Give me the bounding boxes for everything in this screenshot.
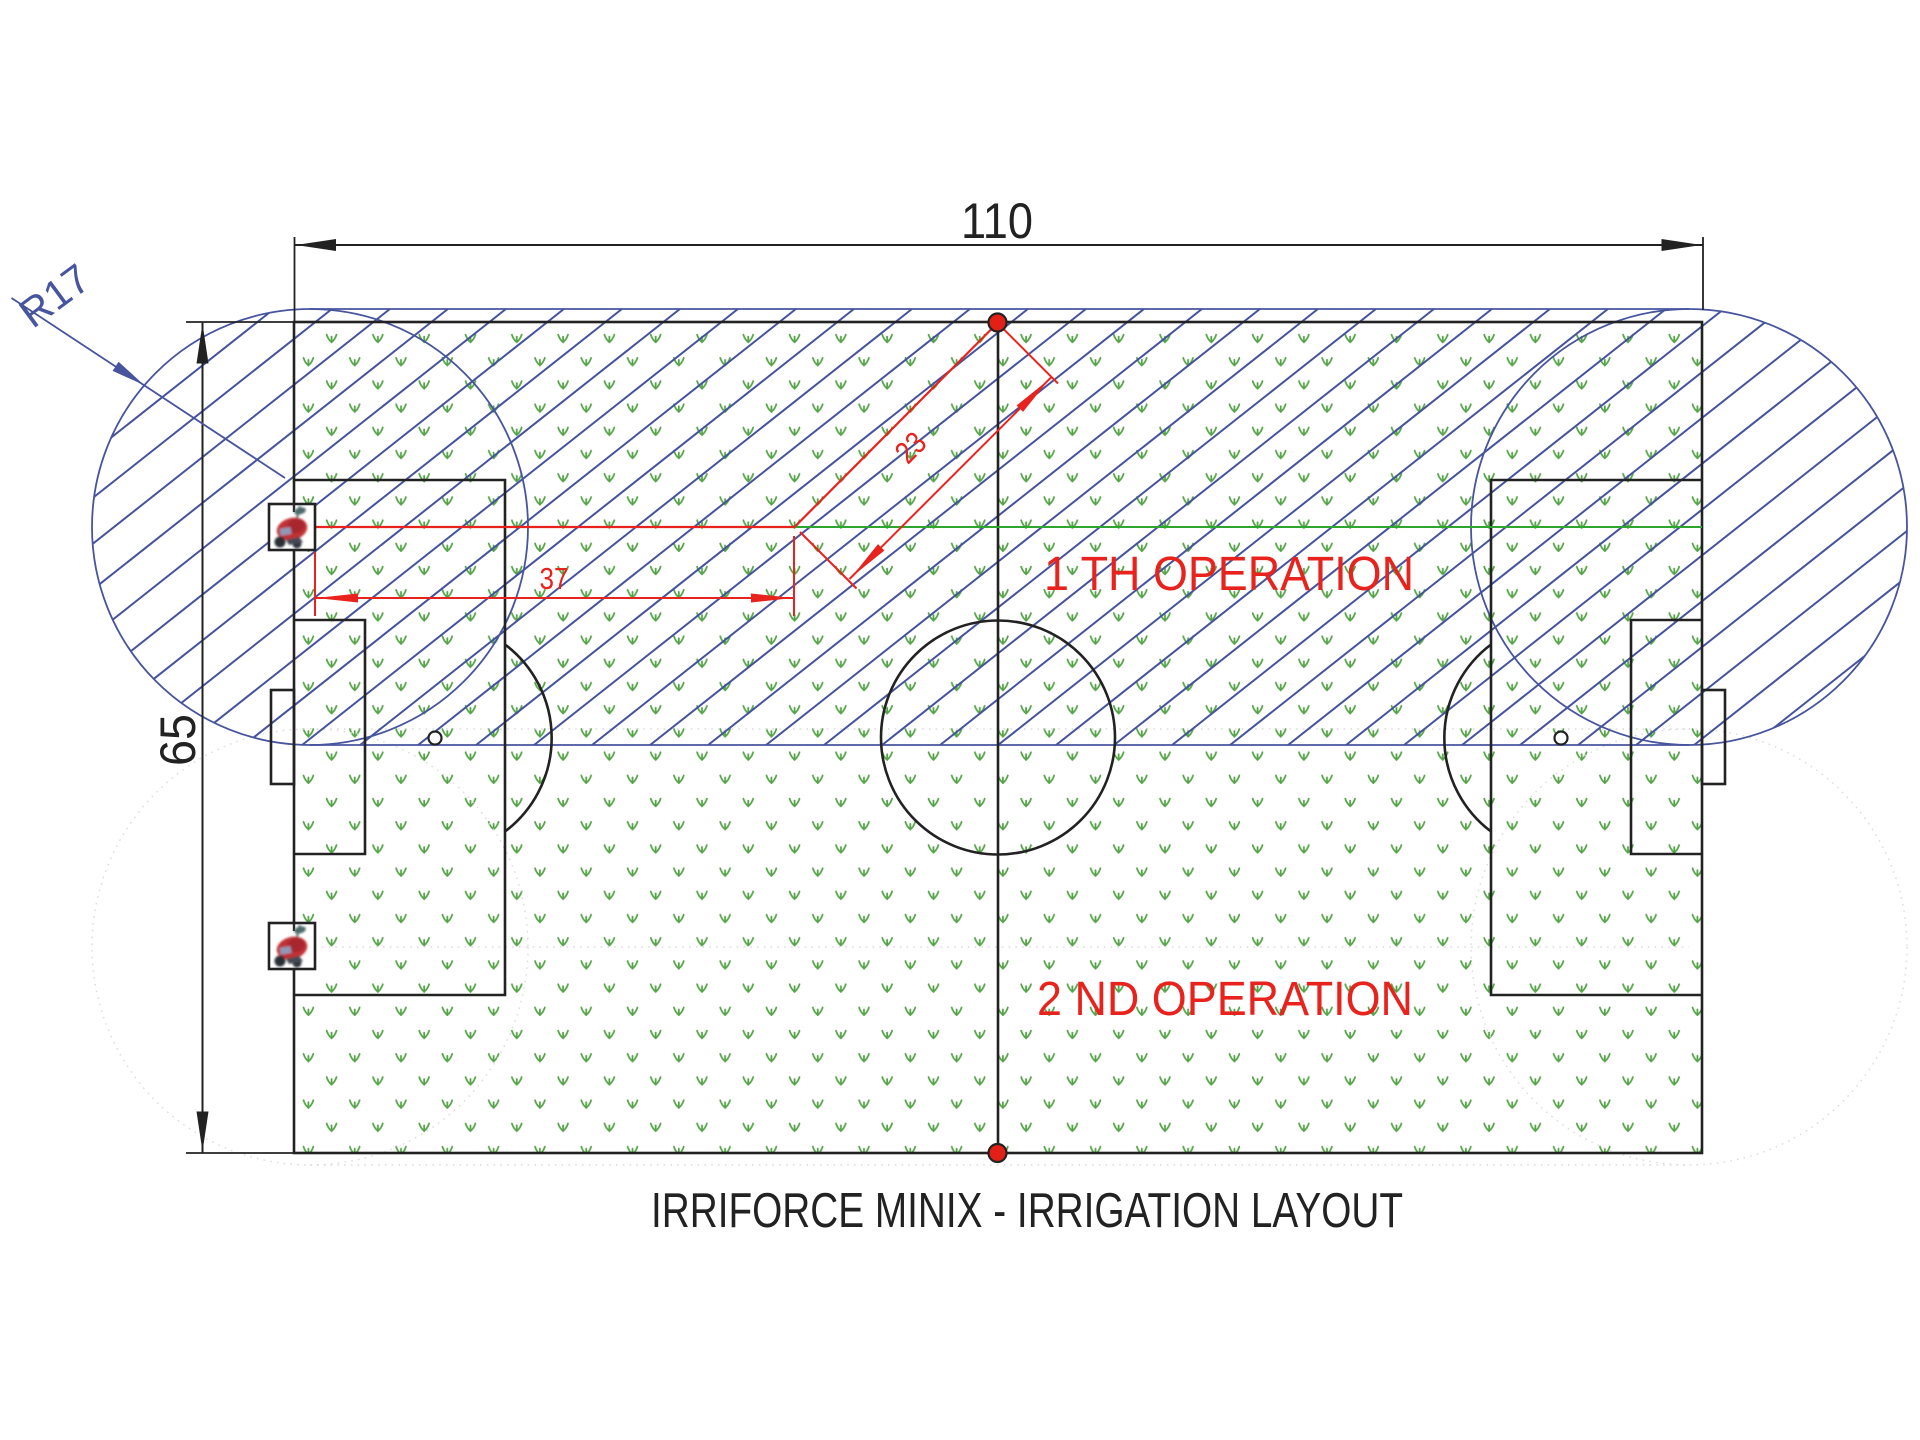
svg-text:37: 37 [540,561,569,596]
svg-text:110: 110 [961,193,1033,249]
svg-text:2 ND OPERATION: 2 ND OPERATION [1037,973,1413,1026]
svg-text:IRRIFORCE MINIX - IRRIGATION L: IRRIFORCE MINIX - IRRIGATION LAYOUT [651,1184,1403,1238]
svg-text:1 TH OPERATION: 1 TH OPERATION [1044,548,1414,601]
svg-text:65: 65 [150,714,206,766]
